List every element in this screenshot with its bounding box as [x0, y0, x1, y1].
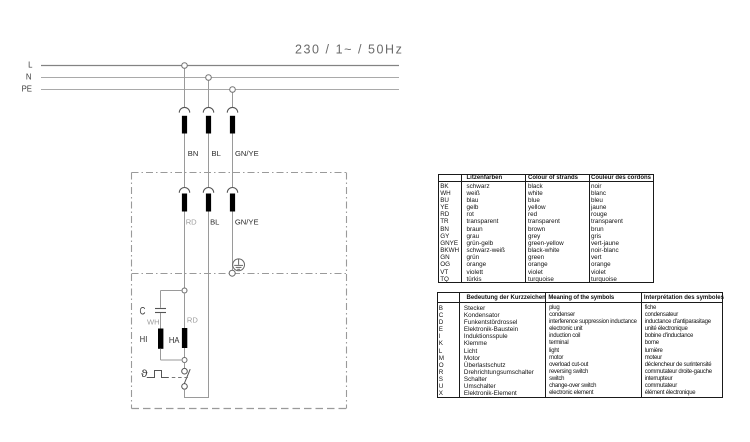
svg-text:PE: PE [22, 85, 32, 94]
svg-text:RD: RD [187, 316, 198, 325]
svg-text:HA: HA [169, 336, 180, 345]
svg-text:BL: BL [210, 218, 219, 227]
svg-text:L: L [28, 61, 33, 70]
svg-text:GN/YE: GN/YE [235, 218, 259, 227]
svg-text:RD: RD [186, 218, 197, 227]
svg-text:230 / 1~ / 50Hz: 230 / 1~ / 50Hz [295, 43, 403, 57]
svg-text:HI: HI [140, 335, 148, 344]
svg-text:ϑ: ϑ [141, 368, 148, 380]
svg-text:WH: WH [147, 318, 160, 327]
svg-text:GN/YE: GN/YE [235, 149, 259, 158]
svg-text:BL: BL [212, 149, 221, 158]
svg-text:N: N [26, 73, 32, 82]
svg-text:BN: BN [188, 149, 199, 158]
svg-text:C: C [140, 305, 146, 317]
